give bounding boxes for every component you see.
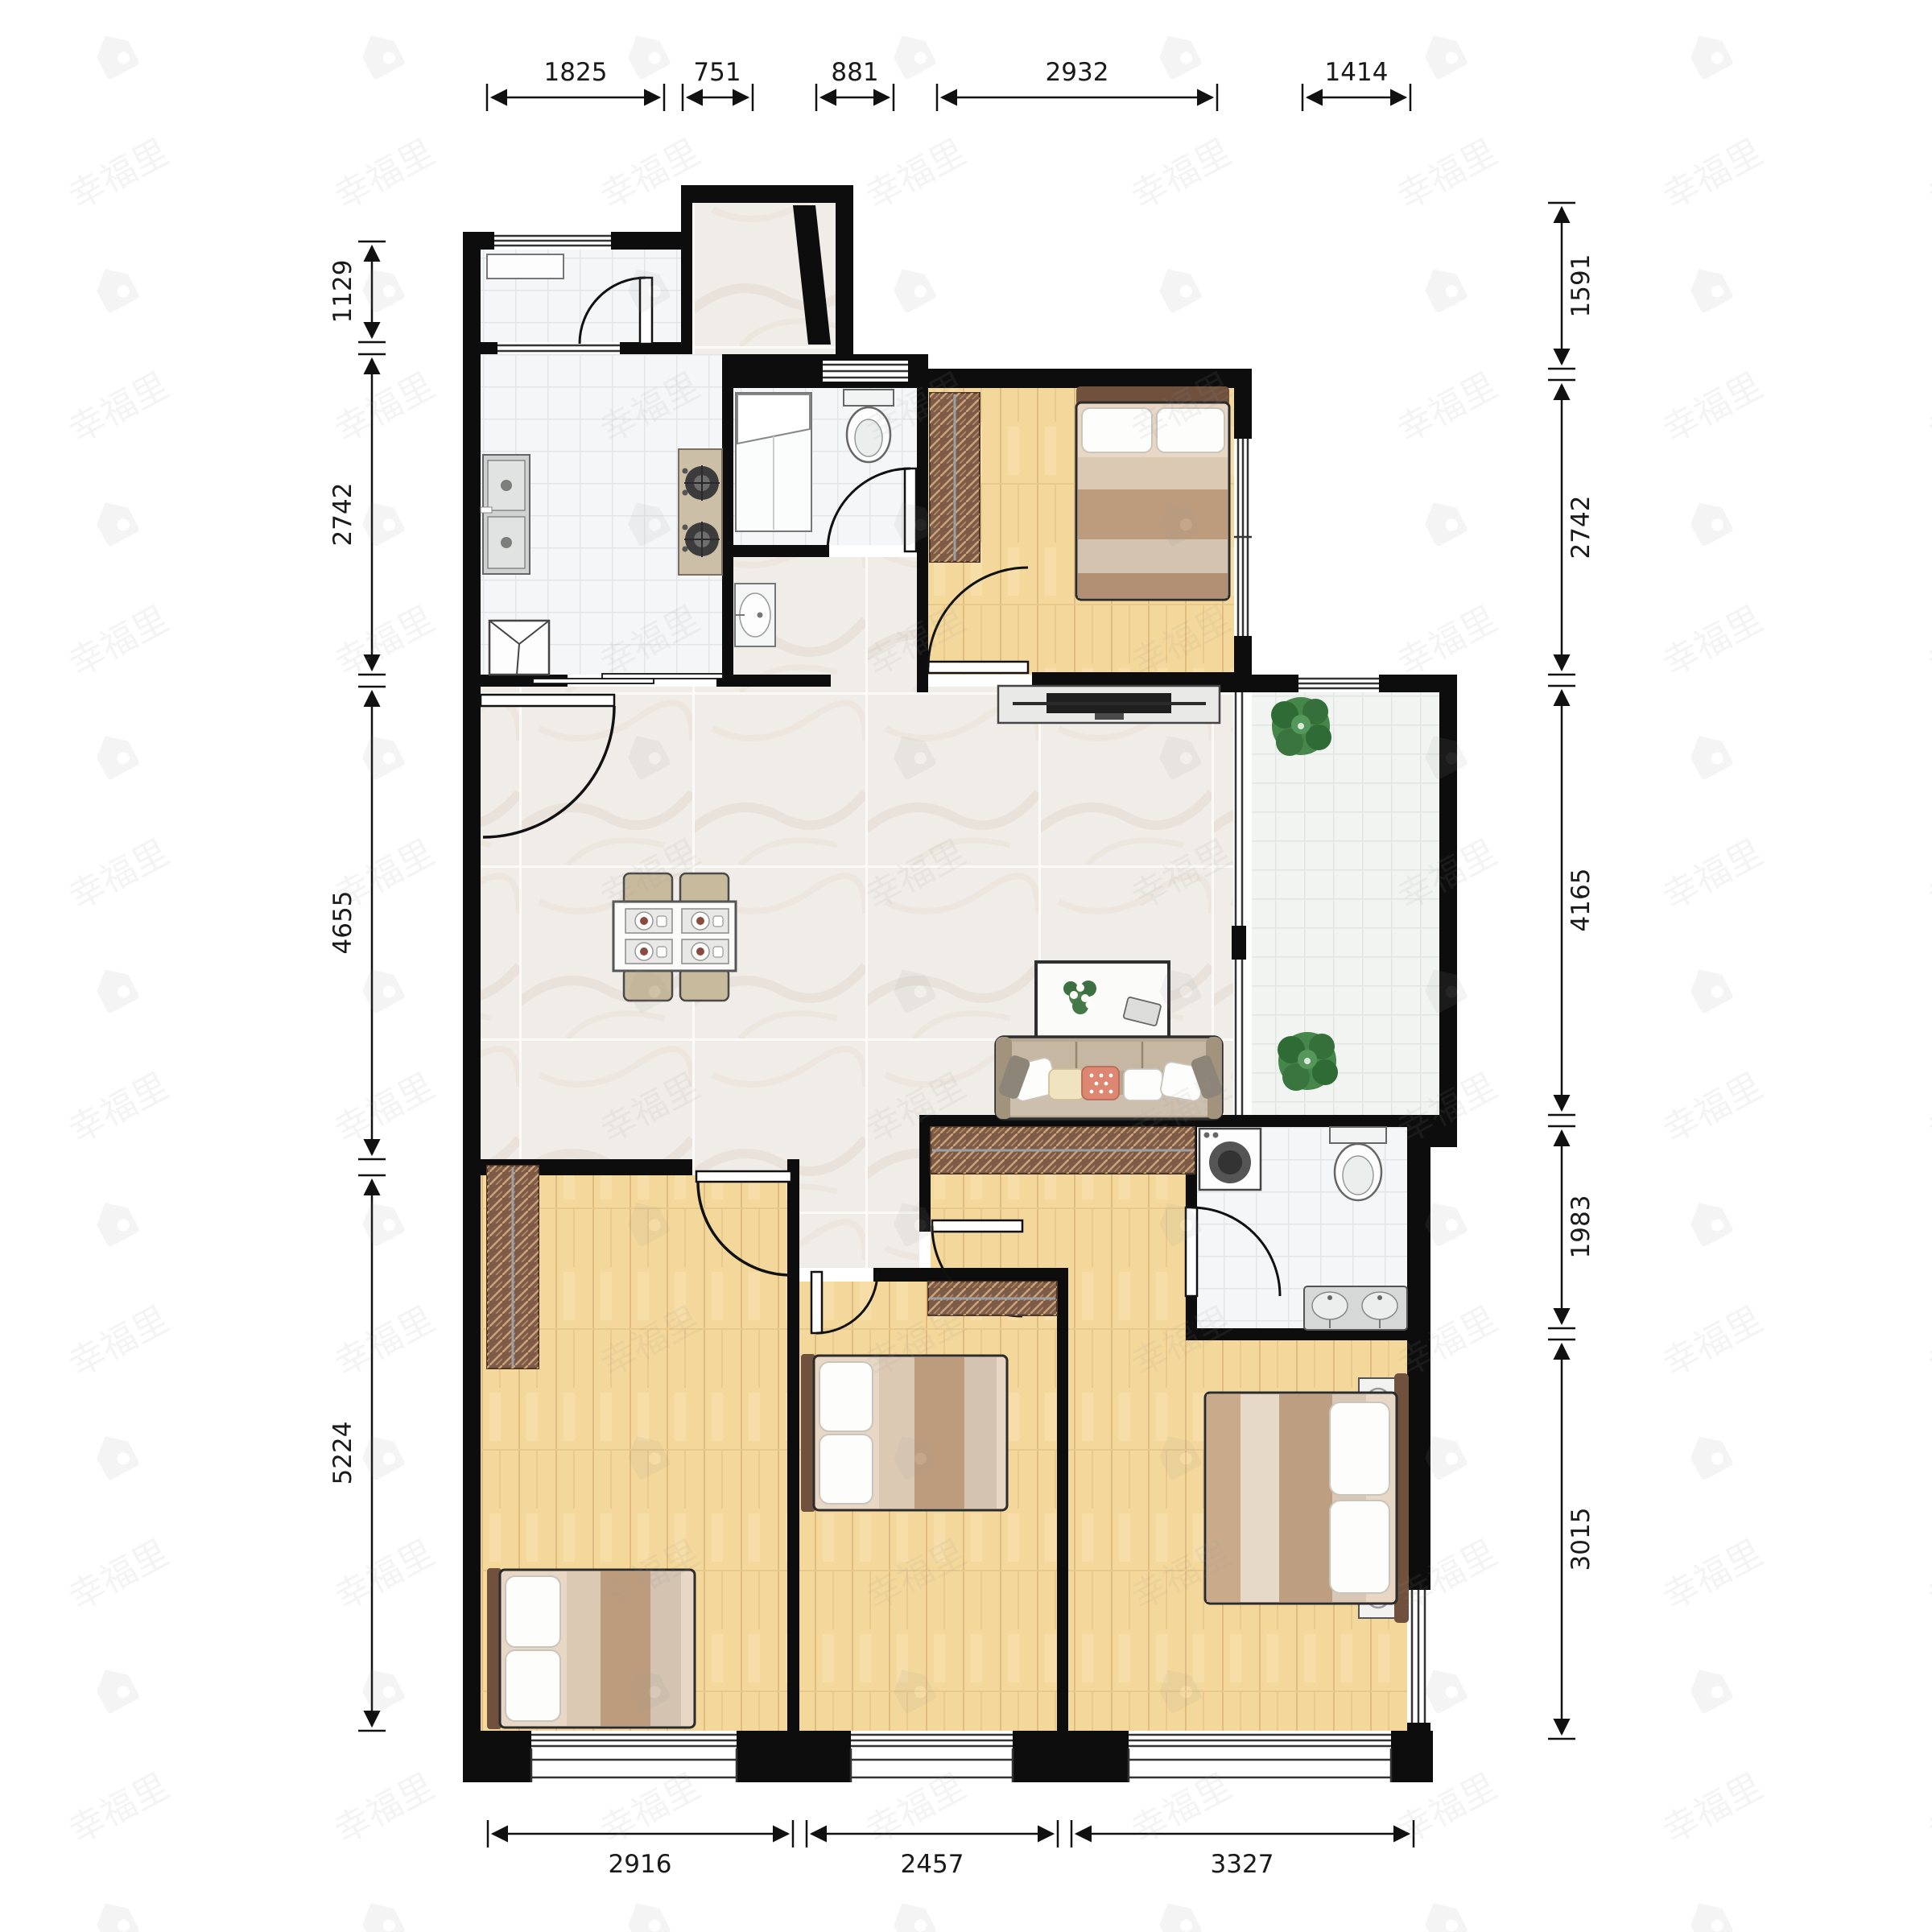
floorplan-canvas: 幸福里	[0, 0, 1932, 1932]
watermark-layer	[0, 0, 1932, 1932]
floorplan-svg: 幸福里	[0, 0, 1932, 1932]
